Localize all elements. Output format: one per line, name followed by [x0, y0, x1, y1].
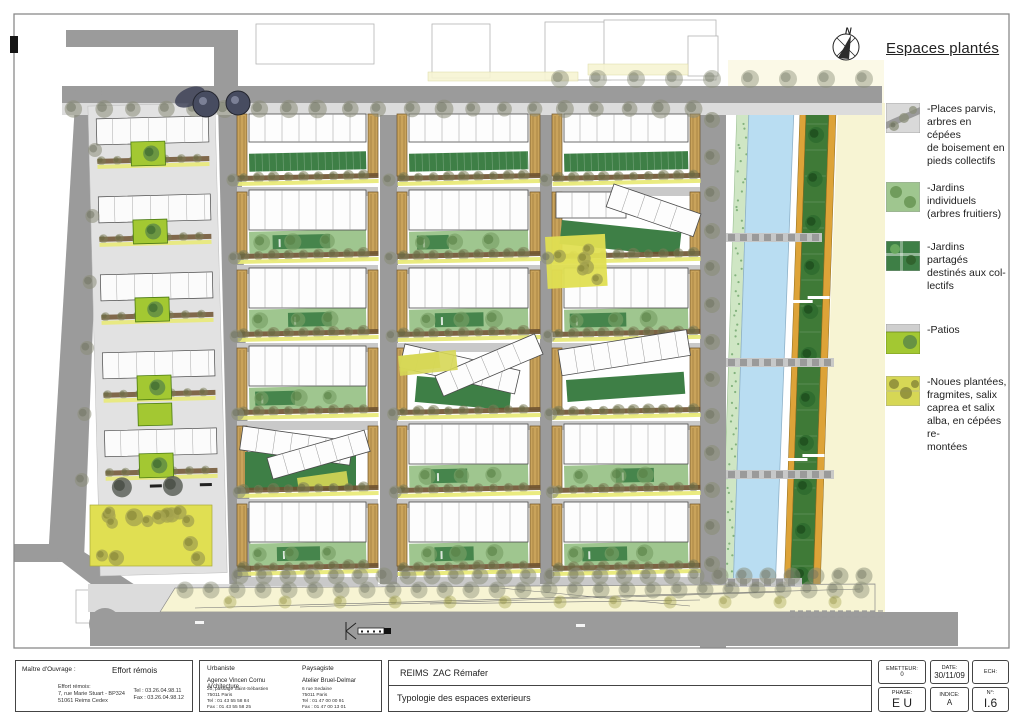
paysagiste-heading: Paysagiste [302, 665, 334, 672]
legend-item-jardins-individuels: -Jardins individuels (arbres fruitiers) [886, 182, 1008, 221]
owner-phone: Tel : 03.26.04.98.11 Fax : 03.26.04.98.1… [134, 688, 184, 702]
titleblock-project: REIMS ZAC Rémafer Typologie des espaces … [388, 660, 872, 712]
paysagiste-address: 6 rue Sedaine 75011 Paris Tel : 01 47 00… [302, 687, 346, 711]
ech-label: ECH: [984, 669, 997, 675]
legend-item-label: -Jardins partagés destinés aux col- lect… [927, 241, 1008, 293]
project-city: REIMS [400, 668, 429, 678]
urbaniste-heading: Urbaniste [207, 665, 235, 672]
stamp-indice: INDICE: A [930, 687, 969, 712]
legend-item-patios: -Patios [886, 324, 1008, 354]
noues-swatch-icon [886, 376, 920, 406]
stamp-date: DATE: 30/11/09 [930, 660, 969, 684]
num-value: I.6 [984, 696, 997, 710]
legend-item-noues: -Noues plantées, fragmites, salix caprea… [886, 376, 1008, 454]
legend-item-jardins-partages: -Jardins partagés destinés aux col- lect… [886, 241, 1008, 293]
legend-title: Espaces plantés [886, 40, 1008, 57]
date-value: 30/11/09 [934, 671, 965, 680]
jardins-partages-swatch-icon [886, 241, 920, 271]
titleblock-consultants: Urbaniste Agence Vincen Cornu Architectu… [199, 660, 382, 712]
city-blocks [237, 114, 701, 586]
project-subtitle: Typologie des espaces exterieurs [397, 693, 531, 703]
titleblock-owner: Maître d'Ouvrage : Effort rémois Effort … [15, 660, 193, 712]
patios-swatch-icon [886, 324, 920, 354]
jardins-individuels-swatch-icon [886, 182, 920, 212]
stamp-num: N°: I.6 [972, 687, 1009, 712]
legend-panel: Espaces plantés -Places parvis, arbres e… [886, 40, 1008, 454]
urbaniste-address: 20, passage Saint-Sébastien 75011 Paris … [207, 687, 268, 711]
legend-item-label: -Patios [927, 324, 960, 337]
stamp-ech: ECH: [972, 660, 1009, 684]
compass [833, 34, 859, 60]
legend-item-label: -Noues plantées, fragmites, salix caprea… [927, 376, 1008, 454]
drawing-sheet: N Espaces plantés -Places parvis, arbres… [0, 0, 1024, 722]
legend-item-label: -Places parvis, arbres en cépées de bois… [927, 103, 1008, 168]
legend-item-places-parvis: -Places parvis, arbres en cépées de bois… [886, 103, 1008, 168]
stamp-phase: PHASE: E U [878, 687, 926, 712]
owner-value: Effort rémois [112, 666, 157, 675]
stamp-emetteur: EMETTEUR: 0 [878, 660, 926, 684]
owner-address: Effort rémois: 7, rue Marie Stuart - BP3… [58, 684, 125, 705]
paysagiste-name: Atelier Bruel-Delmar [302, 678, 380, 684]
indice-value: A [947, 698, 952, 707]
emetteur-value: 0 [900, 672, 903, 678]
phase-value: E U [892, 696, 912, 710]
site-plan-svg [0, 0, 1024, 722]
owner-label: Maître d'Ouvrage : [22, 666, 76, 673]
compass-north-label: N [845, 26, 852, 36]
places-parvis-swatch-icon [886, 103, 920, 133]
project-name: ZAC Rémafer [433, 668, 488, 678]
legend-item-label: -Jardins individuels (arbres fruitiers) [927, 182, 1008, 221]
